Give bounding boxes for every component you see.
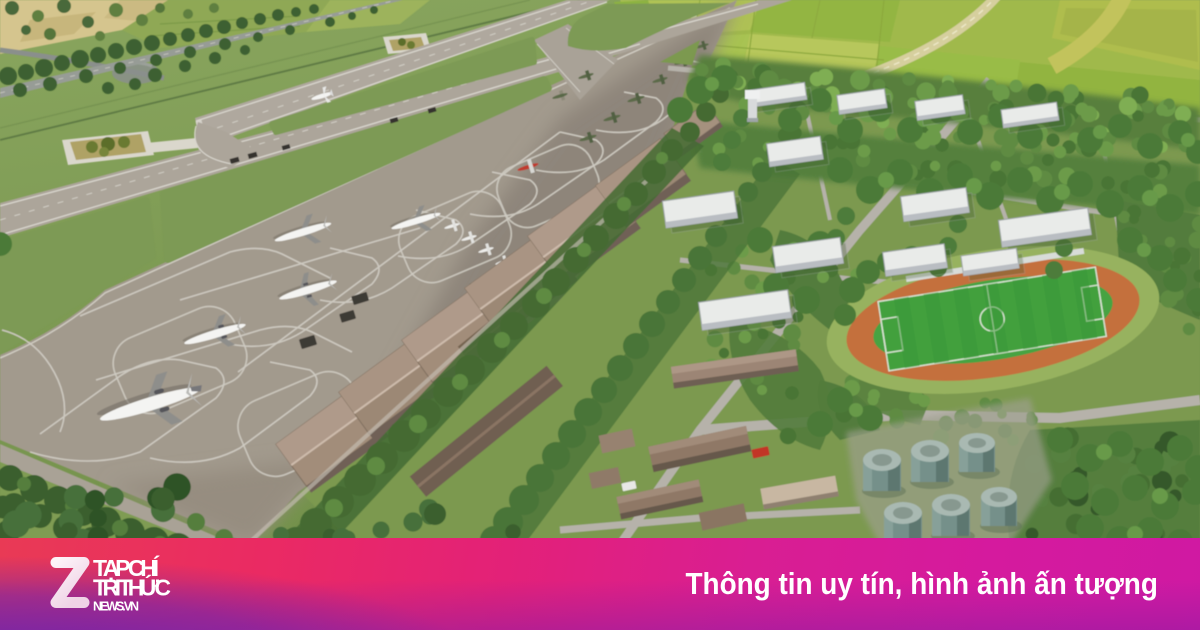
- svg-text:TRI THỨC: TRI THỨC: [93, 574, 171, 601]
- svg-text:NEWS.VN: NEWS.VN: [93, 600, 139, 614]
